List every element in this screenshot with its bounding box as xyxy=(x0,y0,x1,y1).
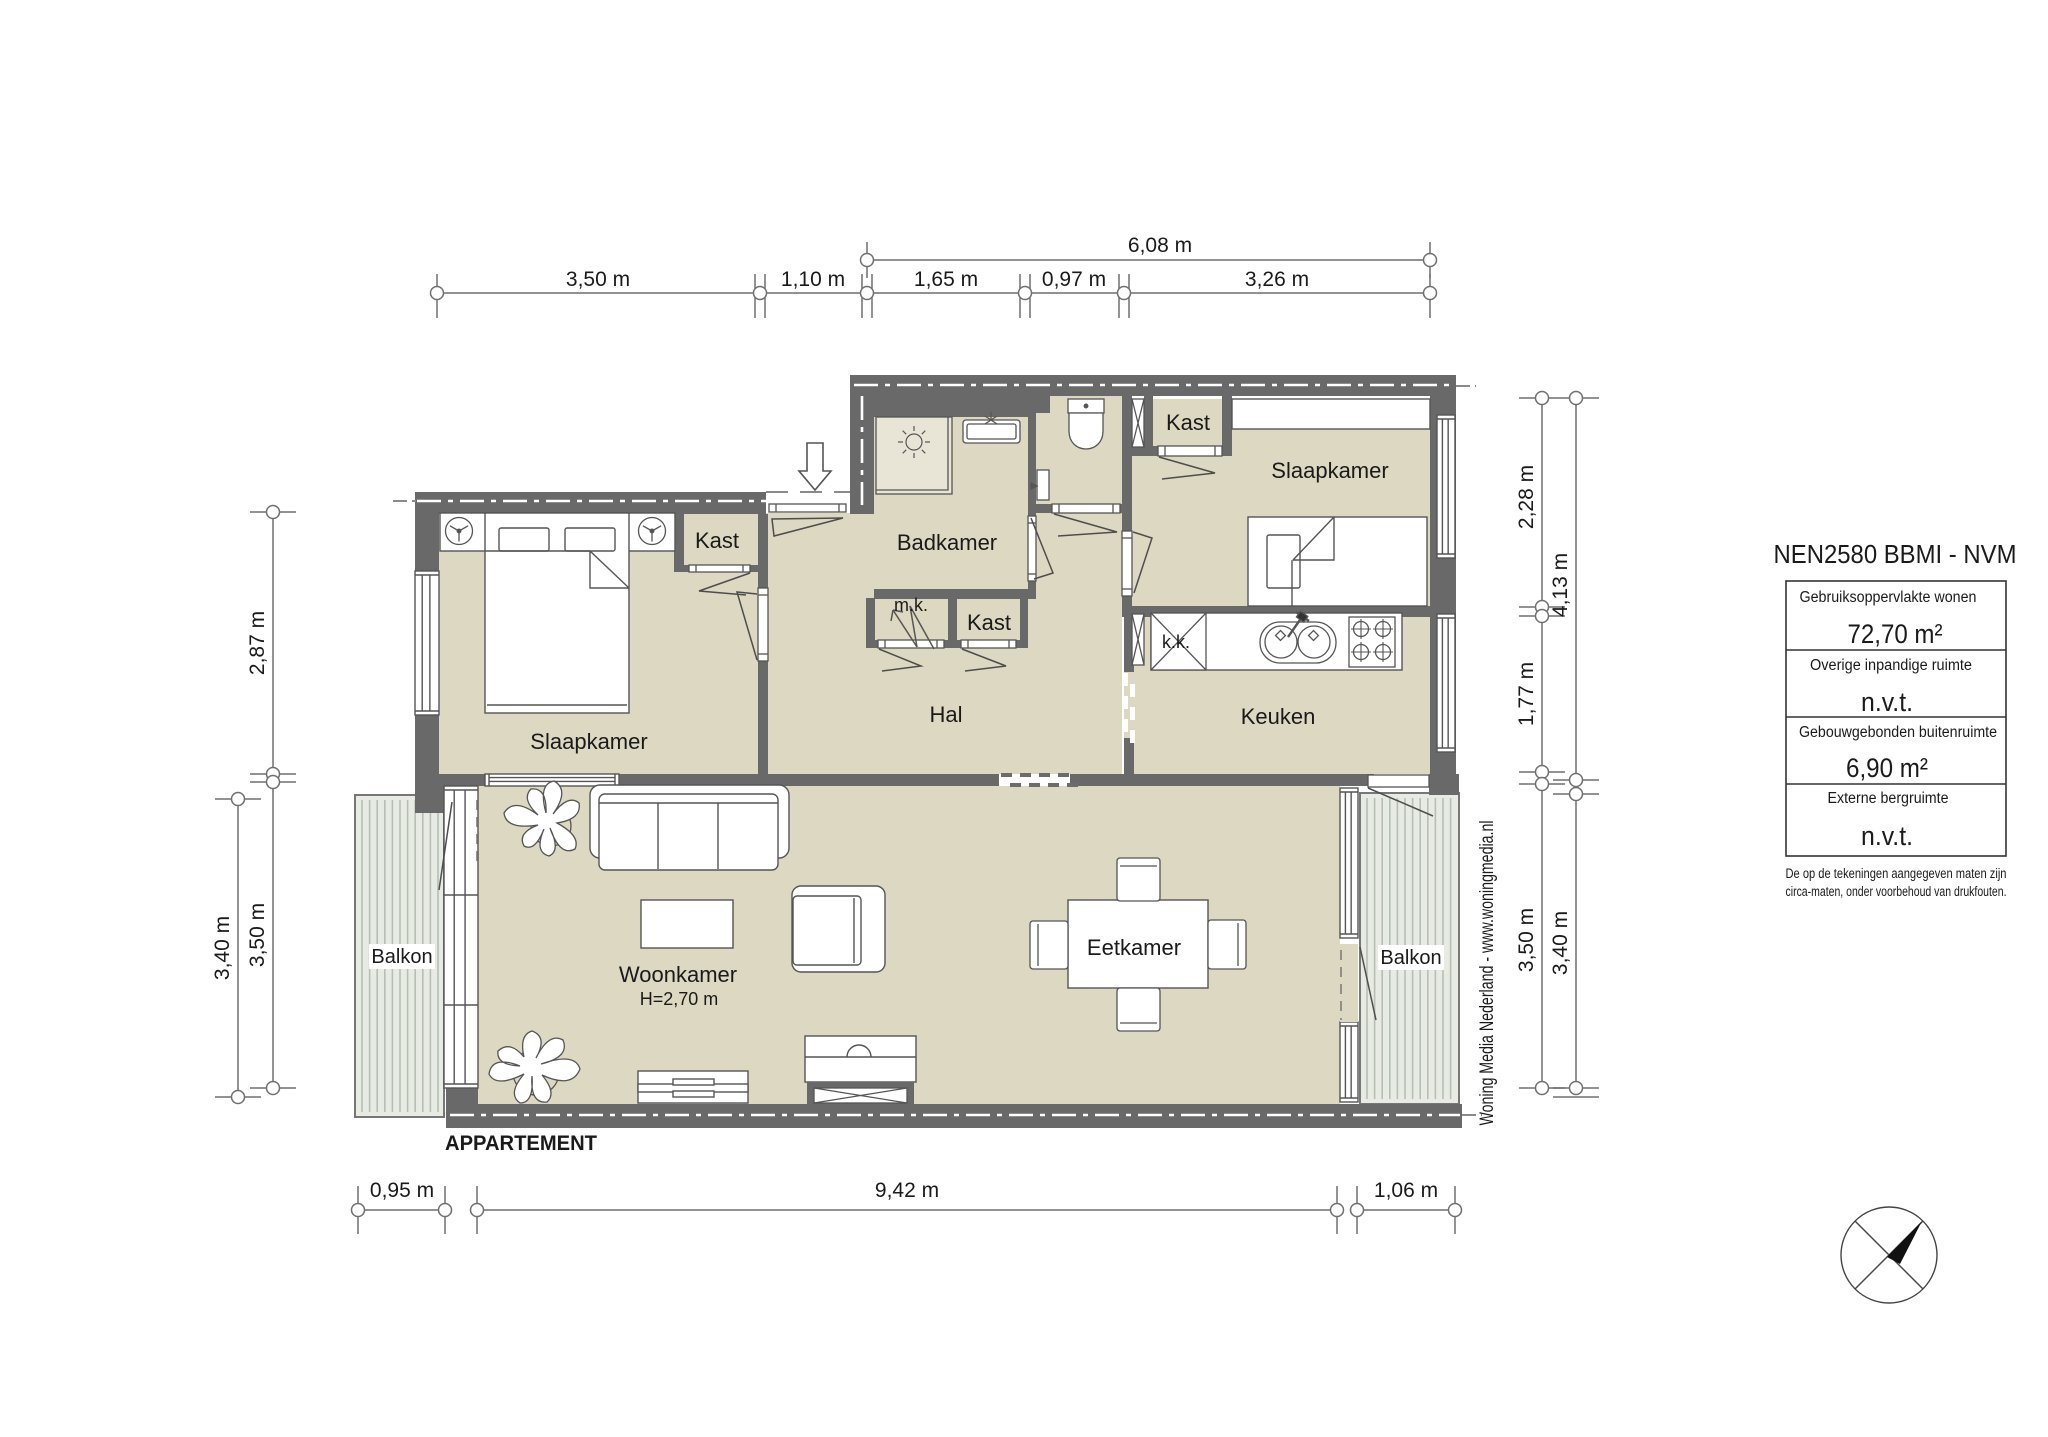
svg-text:n.v.t.: n.v.t. xyxy=(1861,821,1913,851)
svg-text:Gebouwgebonden buitenruimte: Gebouwgebonden buitenruimte xyxy=(1799,724,1997,741)
svg-text:3,50 m: 3,50 m xyxy=(566,268,630,291)
svg-text:6,90 m²: 6,90 m² xyxy=(1846,753,1928,783)
svg-text:Balkon: Balkon xyxy=(371,946,432,968)
svg-text:3,40 m: 3,40 m xyxy=(1549,911,1572,975)
svg-text:4,13 m: 4,13 m xyxy=(1549,553,1572,617)
svg-text:0,95 m: 0,95 m xyxy=(370,1179,434,1202)
svg-text:1,06 m: 1,06 m xyxy=(1374,1179,1438,1202)
svg-text:NEN2580 BBMI - NVM: NEN2580 BBMI - NVM xyxy=(1774,539,2017,569)
svg-text:Eetkamer: Eetkamer xyxy=(1087,935,1181,960)
svg-text:De op de tekeningen aangegeven: De op de tekeningen aangegeven maten zij… xyxy=(1786,866,2007,881)
svg-text:Kast: Kast xyxy=(695,528,739,553)
svg-text:1,10 m: 1,10 m xyxy=(781,268,845,291)
svg-text:Overige inpandige ruimte: Overige inpandige ruimte xyxy=(1810,657,1972,674)
svg-text:Woning Media Nederland - www.w: Woning Media Nederland - www.woningmedia… xyxy=(1477,821,1498,1126)
svg-text:m.k.: m.k. xyxy=(894,595,928,615)
svg-text:1,77 m: 1,77 m xyxy=(1515,662,1538,726)
svg-text:Kast: Kast xyxy=(1166,410,1210,435)
svg-text:3,50 m: 3,50 m xyxy=(1515,908,1538,972)
svg-text:1,65 m: 1,65 m xyxy=(914,268,978,291)
svg-text:Gebruiksoppervlakte wonen: Gebruiksoppervlakte wonen xyxy=(1800,589,1977,606)
svg-text:3,50 m: 3,50 m xyxy=(246,903,269,967)
svg-text:Slaapkamer: Slaapkamer xyxy=(530,729,647,754)
svg-text:Keuken: Keuken xyxy=(1241,704,1316,729)
svg-text:Hal: Hal xyxy=(929,702,962,727)
svg-text:2,28 m: 2,28 m xyxy=(1515,465,1538,529)
svg-text:9,42 m: 9,42 m xyxy=(875,1179,939,1202)
svg-text:3,26 m: 3,26 m xyxy=(1245,268,1309,291)
svg-text:Woonkamer: Woonkamer xyxy=(619,962,737,987)
svg-text:0,97 m: 0,97 m xyxy=(1042,268,1106,291)
svg-text:Kast: Kast xyxy=(967,610,1011,635)
svg-text:H=2,70 m: H=2,70 m xyxy=(640,989,719,1009)
svg-text:n.v.t.: n.v.t. xyxy=(1861,687,1913,717)
svg-text:2,87 m: 2,87 m xyxy=(246,611,269,675)
svg-text:APPARTEMENT: APPARTEMENT xyxy=(445,1132,597,1155)
svg-text:Badkamer: Badkamer xyxy=(897,530,997,555)
svg-text:6,08 m: 6,08 m xyxy=(1128,234,1192,257)
svg-text:k.k.: k.k. xyxy=(1162,632,1190,652)
svg-text:Externe bergruimte: Externe bergruimte xyxy=(1828,790,1949,807)
svg-text:Balkon: Balkon xyxy=(1380,947,1441,969)
svg-text:72,70 m²: 72,70 m² xyxy=(1848,619,1943,649)
svg-text:3,40 m: 3,40 m xyxy=(211,916,234,980)
svg-text:circa-maten, onder voorbehoud: circa-maten, onder voorbehoud van drukfo… xyxy=(1786,884,2007,899)
svg-text:Slaapkamer: Slaapkamer xyxy=(1271,458,1388,483)
